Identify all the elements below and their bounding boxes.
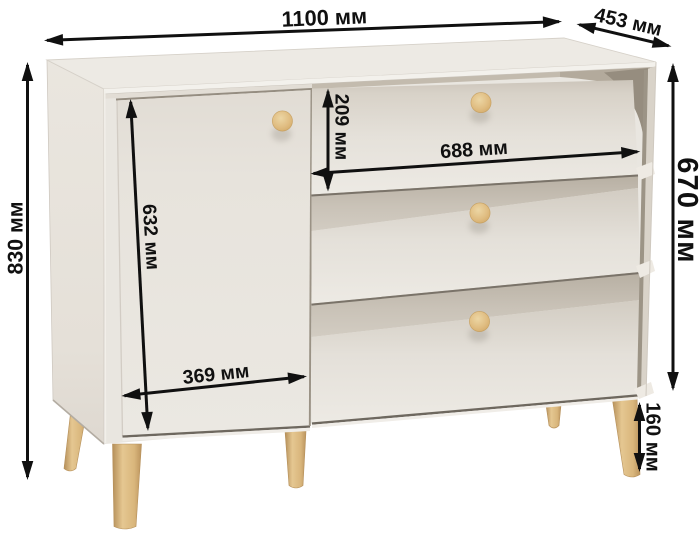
svg-text:1100 мм: 1100 мм — [281, 3, 368, 31]
svg-text:830 мм: 830 мм — [4, 202, 28, 275]
svg-text:670 мм: 670 мм — [671, 157, 700, 264]
svg-text:160 мм: 160 мм — [642, 402, 664, 471]
svg-text:688 мм: 688 мм — [439, 137, 508, 164]
svg-text:632 мм: 632 мм — [138, 204, 163, 271]
svg-text:209 мм: 209 мм — [330, 94, 352, 160]
